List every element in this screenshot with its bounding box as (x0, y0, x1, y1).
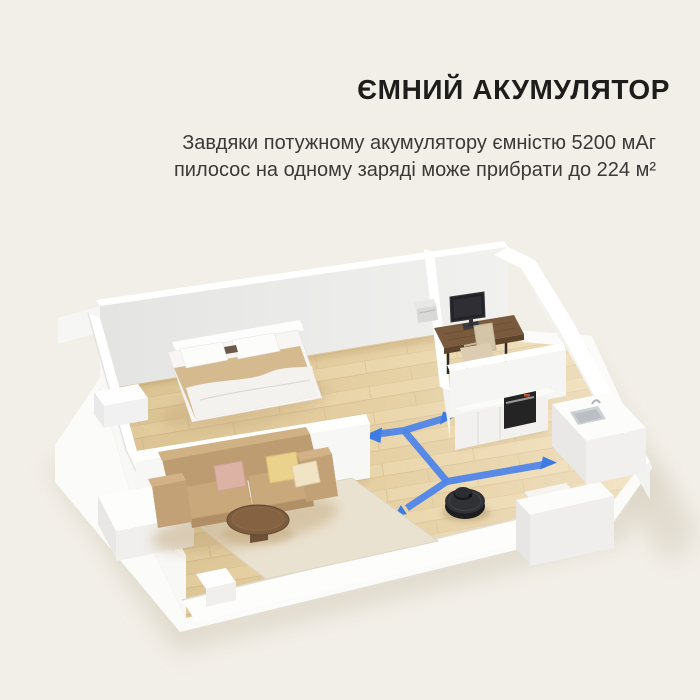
marketing-slide: ЄМНИЙ АКУМУЛЯТОР Завдяки потужному акуму… (0, 0, 700, 700)
page-title: ЄМНИЙ АКУМУЛЯТОР (174, 74, 670, 106)
subtitle-line-2: пилосос на одному заряді може прибрати д… (174, 157, 656, 184)
oven-display (524, 394, 530, 397)
robot-sensor (469, 494, 472, 497)
sofa-armrest (152, 480, 192, 528)
coffee-table (222, 505, 294, 544)
nightstand (94, 384, 148, 428)
subtitle: Завдяки потужному акумулятору ємністю 52… (174, 130, 656, 184)
printer (414, 299, 438, 323)
subtitle-line-1: Завдяки потужному акумулятору ємністю 52… (174, 130, 656, 157)
heading-block: ЄМНИЙ АКУМУЛЯТОР Завдяки потужному акуму… (174, 74, 670, 184)
pillow-pink (214, 461, 246, 491)
pillow-cream (292, 461, 320, 487)
